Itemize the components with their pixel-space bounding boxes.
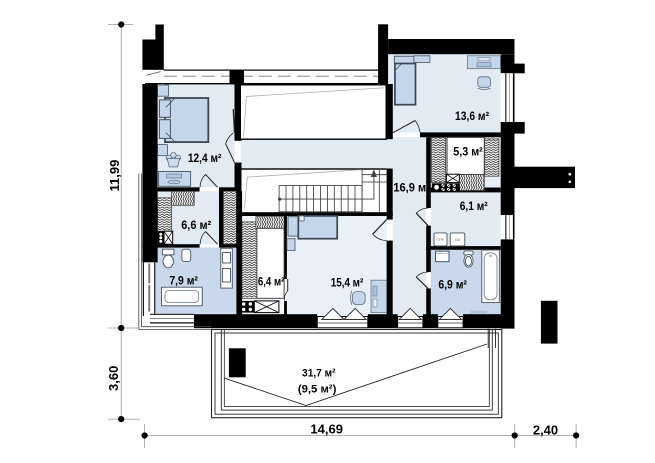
svg-text:5,3 м²: 5,3 м² (453, 145, 483, 159)
svg-text:16,9 м²: 16,9 м² (393, 180, 430, 194)
svg-text:6,9 м²: 6,9 м² (438, 277, 467, 291)
svg-text:11,99: 11,99 (107, 160, 122, 192)
svg-text:6,4 м²: 6,4 м² (258, 274, 285, 288)
svg-text:15,4 м²: 15,4 м² (331, 276, 364, 290)
svg-text:31,7 м²: 31,7 м² (302, 368, 336, 380)
svg-text:12,4 м²: 12,4 м² (188, 151, 222, 165)
svg-text:СТ.М.: СТ.М. (437, 238, 445, 242)
svg-text:6,6 м²: 6,6 м² (181, 218, 211, 232)
svg-text:2,40: 2,40 (533, 423, 558, 438)
svg-text:(9,5 м²): (9,5 м²) (298, 384, 337, 396)
svg-text:СШ: СШ (455, 238, 460, 242)
svg-text:3,60: 3,60 (106, 366, 121, 391)
svg-text:14,69: 14,69 (310, 422, 343, 437)
svg-text:6,1 м²: 6,1 м² (460, 199, 488, 213)
svg-text:7,9 м²: 7,9 м² (169, 273, 198, 287)
svg-text:13,6 м²: 13,6 м² (455, 109, 489, 123)
